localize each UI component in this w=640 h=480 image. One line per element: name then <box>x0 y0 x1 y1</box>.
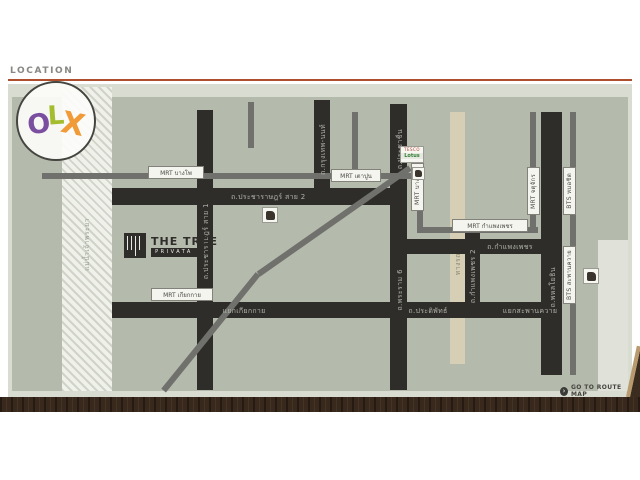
station-label-mrt-bangpho: MRT บางโพ <box>148 166 204 179</box>
page-title: LOCATION <box>10 66 73 76</box>
location-section: LOCATION แม่น้ำเจ้าพระยา ทางรถไฟ <box>0 0 640 480</box>
footer-wood-strip <box>0 397 640 412</box>
minor-road-taopun <box>352 112 358 176</box>
route-map-arrow-icon: › <box>560 387 568 396</box>
road-label-pracharat2: ถ.ประชาราษฎร์ สาย 2 <box>231 192 301 203</box>
tesco-lotus-line2: Lotus <box>401 153 423 159</box>
minor-road-stub <box>248 102 254 148</box>
road-label-kamphaengphet: ถ.กำแพงเพชร <box>475 242 545 253</box>
map-light-area <box>598 240 628 391</box>
road-label-kamphaengphet2: ถ.กำแพงเพชร 2 <box>465 236 480 316</box>
location-map-image: แม่น้ำเจ้าพระยา ทางรถไฟ ถ.ประชาราษฎร์ สา… <box>8 84 632 397</box>
route-map-label: GO TO ROUTE MAP <box>571 384 632 397</box>
road-label-phahonyothin: ถ.พหลโยธิน <box>544 247 560 327</box>
tree-icon <box>124 233 146 258</box>
section-divider <box>8 79 632 81</box>
tree-trunk-icon <box>135 250 136 256</box>
road-label-rama6: ถ.พระราม 6 <box>391 252 407 327</box>
landmark-glyph-icon <box>266 211 275 220</box>
road-label-krungthep-non: ถ.กรุงเทพ-นนท์ <box>314 112 330 187</box>
landmark-glyph-icon <box>587 272 596 281</box>
tesco-lotus-sign: TESCO Lotus <box>400 146 424 163</box>
river-label: แม่น้ำเจ้าพระยา <box>78 202 94 286</box>
project-subname: PRIVATA <box>151 248 197 257</box>
road-label-kiakkai-junction: แยกเกียกกาย <box>209 306 279 317</box>
landmark-icon <box>412 167 425 180</box>
station-label-mrt-taopun: MRT เตาปูน <box>331 169 381 182</box>
station-label-bts-mochit: BTS หมอชิต <box>563 167 576 215</box>
bts-line <box>570 112 576 375</box>
go-to-route-map-link[interactable]: › GO TO ROUTE MAP <box>560 384 632 397</box>
project-name: THE TREE <box>151 235 218 248</box>
station-label-mrt-kamphaengphet: MRT กำแพงเพชร <box>452 219 528 232</box>
station-label-mrt-kiakkai: MRT เกียกกาย <box>151 288 213 301</box>
tree-branches-icon <box>127 236 143 250</box>
station-label-mrt-chatuchak: MRT จตุจักร <box>527 167 540 215</box>
station-label-bts-saphankhwai: BTS สะพานควาย <box>563 246 576 304</box>
project-logo: THE TREE PRIVATA <box>124 232 214 262</box>
landmark-icon <box>262 207 278 223</box>
landmark-glyph-icon <box>415 170 422 177</box>
landmark-icon <box>583 268 599 284</box>
olx-watermark: O L X <box>16 81 96 161</box>
